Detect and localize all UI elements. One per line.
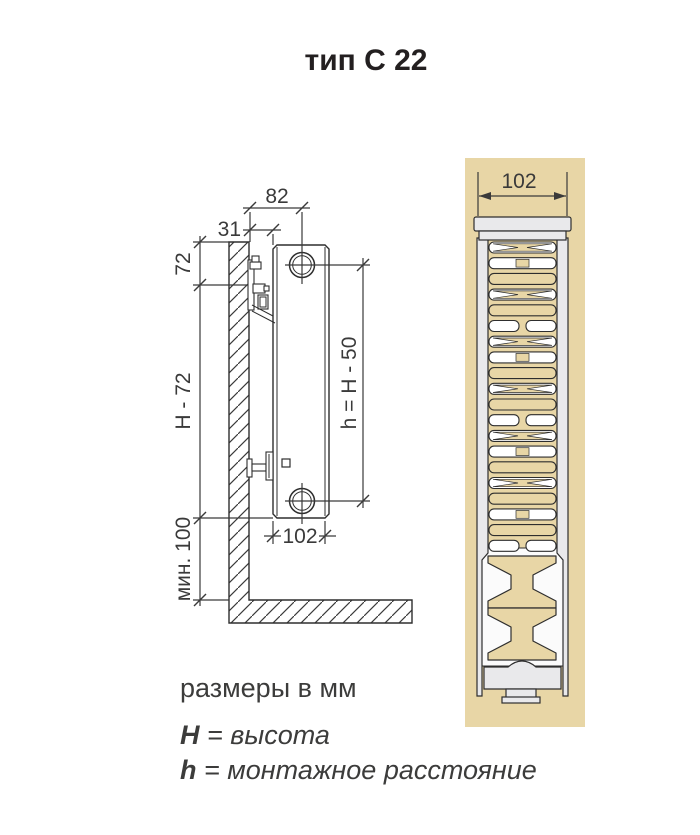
dimension-31: 31	[218, 218, 281, 245]
lower-bracket	[247, 452, 273, 480]
radiator-spec-page: тип С 22	[0, 0, 700, 835]
dim-min-100-label: мин. 100	[172, 517, 195, 601]
side-view-diagram: 82 31 72 H - 72 мин. 100	[172, 185, 412, 623]
dim-31-label: 31	[218, 218, 241, 241]
height-definition: H = высота	[180, 720, 330, 750]
dimension-102-side: 102	[264, 521, 336, 548]
dim-82-label: 82	[265, 185, 288, 208]
radiator-side-body	[273, 245, 329, 518]
units-note: размеры в мм	[180, 673, 357, 703]
vent-square	[282, 459, 290, 467]
cross-section-diagram: 102	[465, 158, 585, 727]
fin-cutaway	[482, 548, 563, 666]
top-cap-neck	[479, 231, 566, 240]
dim-102-side-label: 102	[282, 525, 317, 548]
dimension-82: 82	[243, 185, 310, 242]
diagram-canvas: тип С 22	[0, 0, 700, 835]
mount-definition: h = монтажное расстояние	[180, 755, 537, 785]
top-cap	[474, 217, 571, 231]
dim-72-label: 72	[172, 252, 195, 275]
dimension-mount-distance: h = H - 50	[338, 258, 369, 508]
dim-102-section-label: 102	[501, 170, 536, 193]
dim-h-minus-72-label: H - 72	[172, 372, 195, 429]
upper-bracket	[248, 256, 275, 323]
page-title: тип С 22	[305, 44, 428, 77]
bottom-pipe-flange	[502, 697, 540, 703]
dim-h-formula-label: h = H - 50	[338, 337, 361, 430]
